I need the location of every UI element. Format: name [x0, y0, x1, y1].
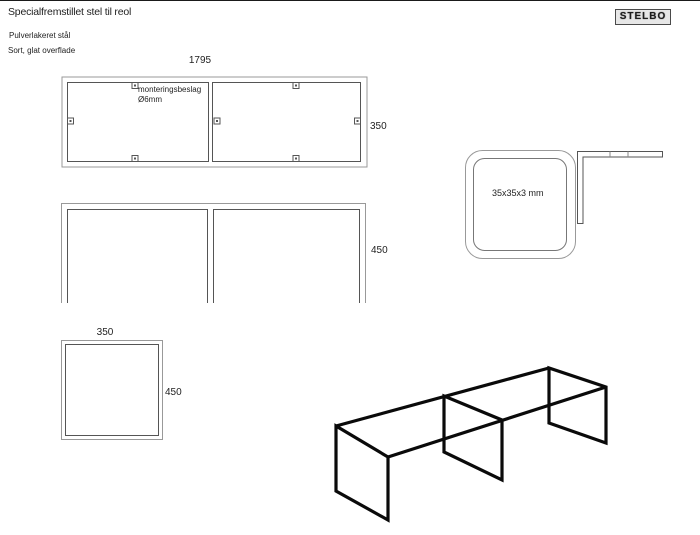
tube-outer-profile: [466, 151, 576, 259]
front-view-drawing: [62, 204, 366, 304]
sketch-right-leg-frame: [549, 368, 606, 443]
technical-drawing-canvas: [0, 0, 700, 535]
profile-detail-drawing: [466, 151, 663, 259]
top-view-depth-dimension: 350: [370, 121, 387, 132]
bracket-note-line2: Ø6mm: [138, 95, 162, 105]
side-view-width-dimension: 350: [85, 327, 125, 338]
mounting-bracket-markers: [68, 83, 361, 162]
top-view-right-bay-outline: [213, 83, 361, 162]
sketch-middle-leg-frame: [444, 396, 502, 480]
front-view-right-bay-outline: [214, 210, 360, 304]
side-view-drawing: [62, 341, 163, 440]
isometric-sketch: [336, 368, 606, 520]
top-view-length-dimension: 1795: [180, 55, 220, 66]
mounting-bracket-angle-outline: [578, 152, 663, 224]
profile-size-label: 35x35x3 mm: [492, 188, 544, 198]
drawing-sheet: Specialfremstillet stel til reol Pulverl…: [0, 0, 700, 535]
side-view-outer-outline: [62, 341, 163, 440]
front-view-left-bay-outline: [68, 210, 208, 304]
bracket-note-line1: monteringsbeslag: [138, 85, 201, 95]
side-view-inner-outline: [66, 345, 159, 436]
side-view-height-dimension: 450: [165, 387, 182, 398]
tube-inner-profile: [474, 159, 567, 251]
sketch-front-rail: [388, 387, 606, 457]
sketch-left-leg-frame: [336, 426, 388, 520]
front-view-height-dimension: 450: [371, 245, 388, 256]
top-view-drawing: [62, 77, 367, 167]
